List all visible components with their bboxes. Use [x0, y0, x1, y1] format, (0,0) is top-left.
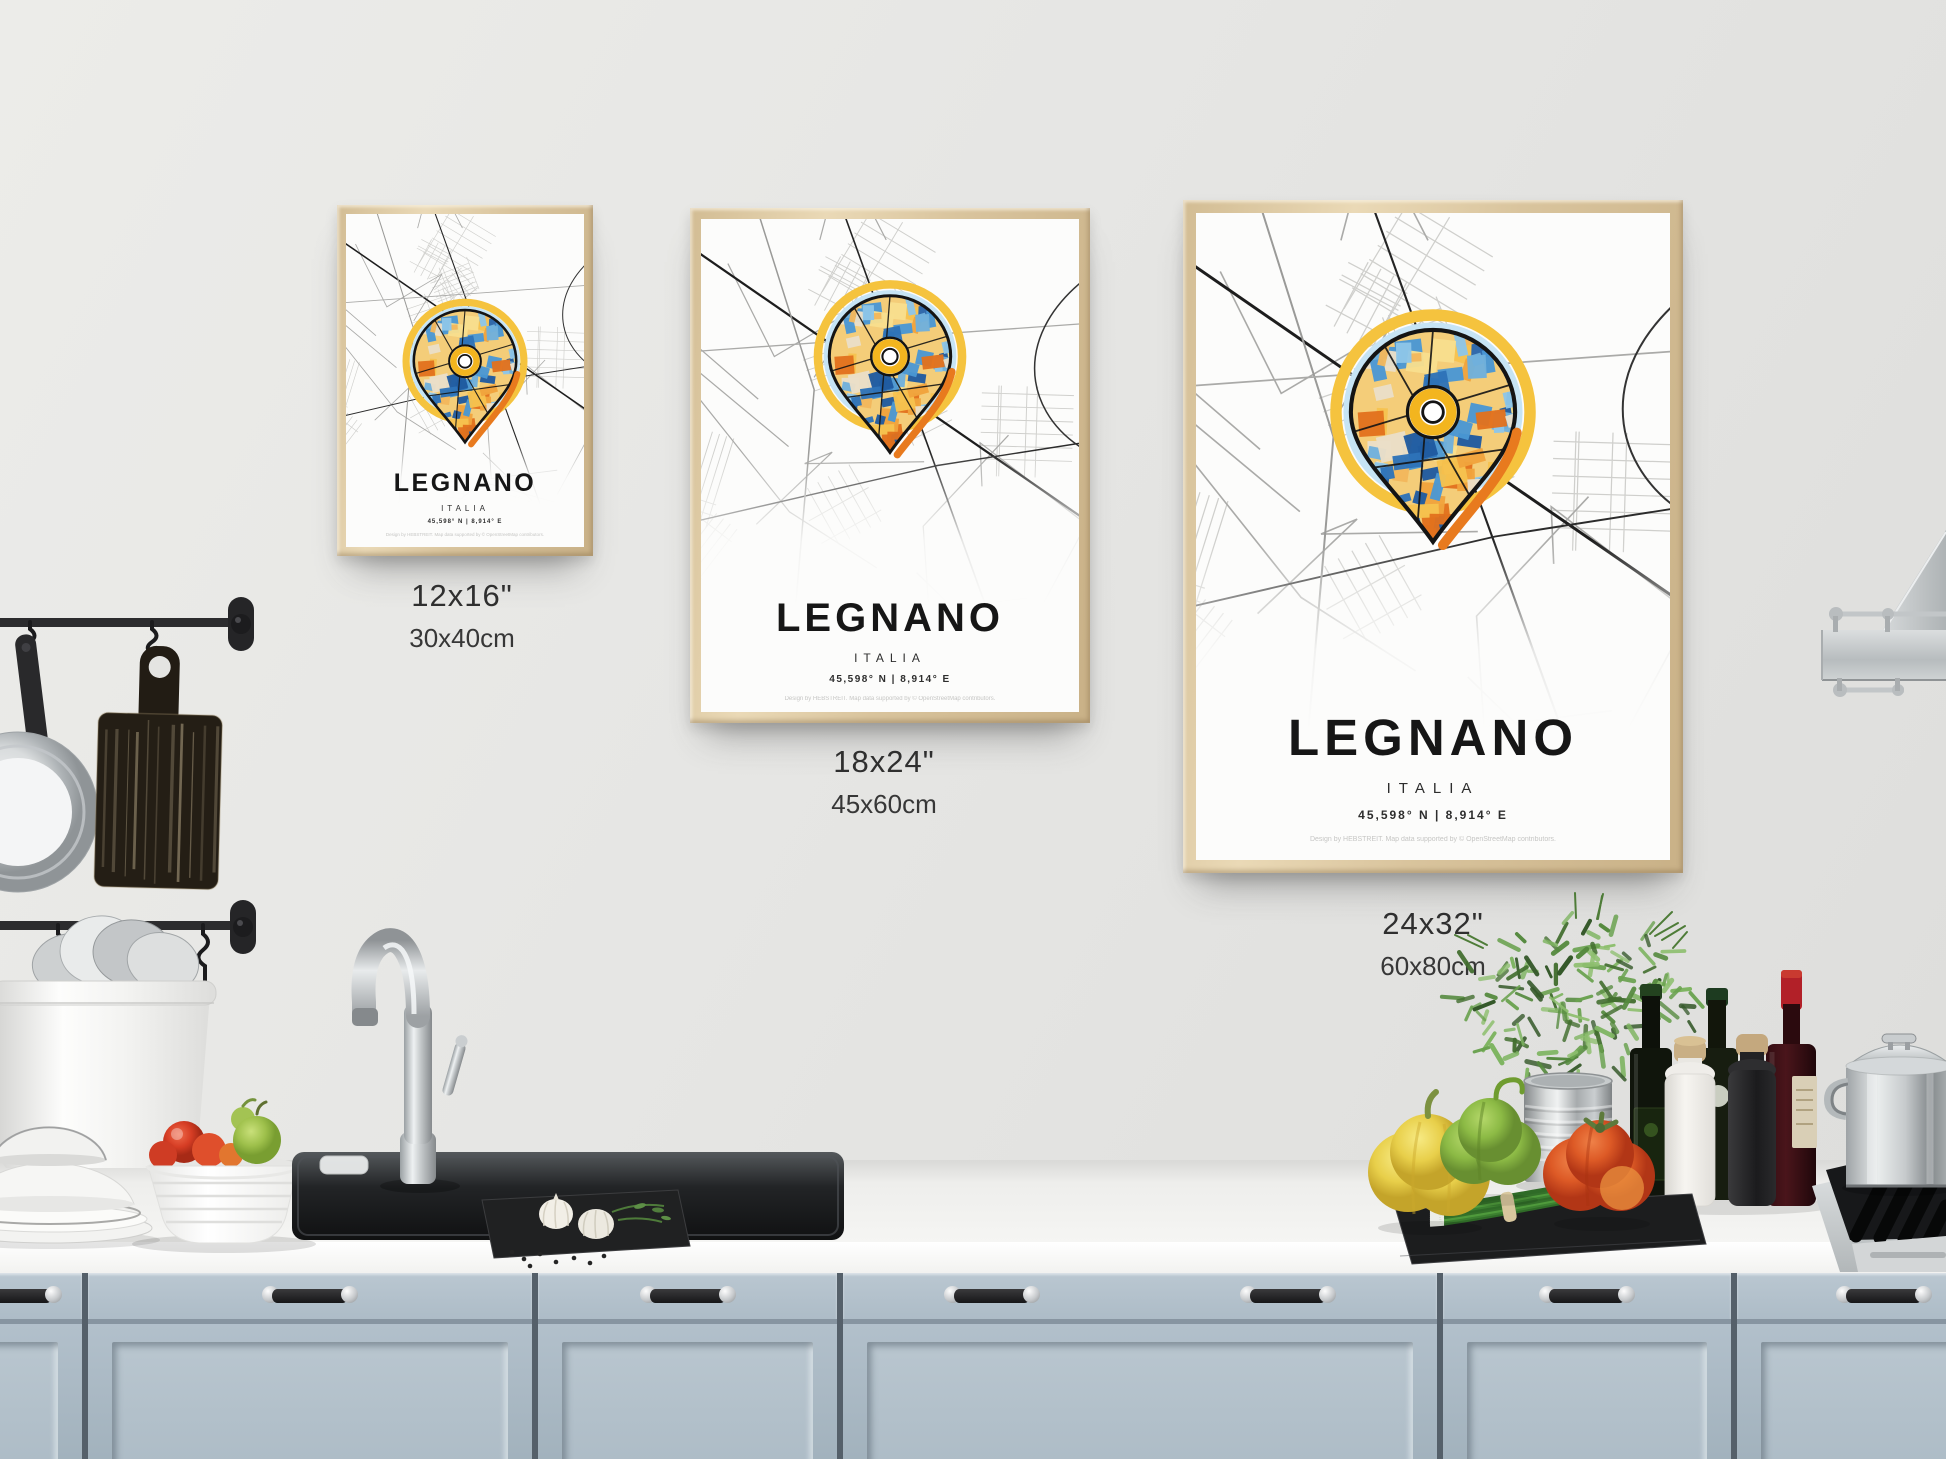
- countertop-front-edge: [0, 1242, 1946, 1275]
- cabinet-drawer: [538, 1273, 837, 1324]
- cabinet-unit: [0, 1273, 82, 1459]
- poster-print-medium: LEGNANO ITALIA 45,598° N | 8,914° E Desi…: [701, 219, 1079, 712]
- handle-rosette: [719, 1286, 736, 1303]
- size-label-24x32: 24x32" 60x80cm: [1380, 906, 1486, 982]
- size-inches: 12x16": [409, 578, 515, 614]
- size-cm: 60x80cm: [1380, 951, 1486, 982]
- cabinet-door: [843, 1324, 1437, 1459]
- poster-frame-small: LEGNANO ITALIA 45,598° N | 8,914° E Desi…: [337, 205, 593, 556]
- poster-coordinates: 45,598° N | 8,914° E: [701, 674, 1079, 685]
- cabinet-door-panel: [1467, 1342, 1707, 1459]
- poster-print-small: LEGNANO ITALIA 45,598° N | 8,914° E Desi…: [346, 214, 584, 547]
- handle-rosette: [1915, 1286, 1932, 1303]
- poster-country: ITALIA: [346, 504, 584, 513]
- handle-rosette: [1023, 1286, 1040, 1303]
- cabinet-handle: [1539, 1283, 1635, 1309]
- poster-frame-large: LEGNANO ITALIA 45,598° N | 8,914° E Desi…: [1183, 200, 1683, 873]
- cabinet-door-panel: [0, 1342, 58, 1459]
- handle-rosette: [341, 1286, 358, 1303]
- cabinet-door: [0, 1324, 82, 1459]
- cabinet-handle: [1240, 1283, 1336, 1309]
- cabinet-handle: [1836, 1283, 1932, 1309]
- cabinet-drawer: [88, 1273, 532, 1324]
- handle-rosette: [1319, 1286, 1336, 1303]
- poster-coordinates: 45,598° N | 8,914° E: [346, 519, 584, 525]
- size-label-12x16: 12x16" 30x40cm: [409, 578, 515, 654]
- size-inches: 24x32": [1380, 906, 1486, 942]
- cabinet-door: [1443, 1324, 1731, 1459]
- size-cm: 45x60cm: [831, 789, 937, 820]
- cabinet-door-panel: [867, 1342, 1413, 1459]
- handle-bar: [954, 1289, 1030, 1303]
- cabinet-handle: [944, 1283, 1040, 1309]
- poster-city-title: LEGNANO: [346, 469, 584, 498]
- poster-country: ITALIA: [1196, 780, 1670, 797]
- poster-credit: Design by HEBSTREIT. Map data supported …: [360, 532, 569, 537]
- handle-bar: [650, 1289, 726, 1303]
- cabinet-unit: [88, 1273, 532, 1459]
- poster-credit: Design by HEBSTREIT. Map data supported …: [1224, 836, 1641, 843]
- handle-bar: [1846, 1289, 1922, 1303]
- cabinet-door-panel: [562, 1342, 813, 1459]
- cabinet-door: [538, 1324, 837, 1459]
- poster-city-title: LEGNANO: [701, 596, 1079, 641]
- handle-rosette: [1618, 1286, 1635, 1303]
- cabinet-unit: [538, 1273, 837, 1459]
- cabinet-drawer: [1737, 1273, 1946, 1324]
- poster-text: LEGNANO ITALIA 45,598° N | 8,914° E Desi…: [346, 469, 584, 537]
- handle-bar: [1549, 1289, 1625, 1303]
- size-cm: 30x40cm: [409, 623, 515, 654]
- kitchen-cabinets: [0, 1273, 1946, 1459]
- handle-rosette: [45, 1286, 62, 1303]
- cabinet-door-panel: [112, 1342, 508, 1459]
- cabinet-handle: [0, 1283, 62, 1309]
- cabinet-unit: [1443, 1273, 1731, 1459]
- cabinet-handle: [262, 1283, 358, 1309]
- poster-text: LEGNANO ITALIA 45,598° N | 8,914° E Desi…: [1196, 708, 1670, 843]
- handle-bar: [272, 1289, 348, 1303]
- cabinet-drawer: [0, 1273, 82, 1324]
- cabinet-drawer: [843, 1273, 1437, 1324]
- poster-frame-medium: LEGNANO ITALIA 45,598° N | 8,914° E Desi…: [690, 208, 1090, 723]
- cabinet-unit: [1737, 1273, 1946, 1459]
- poster-print-large: LEGNANO ITALIA 45,598° N | 8,914° E Desi…: [1196, 213, 1670, 860]
- cabinet-door-panel: [1761, 1342, 1946, 1459]
- handle-bar: [1250, 1289, 1326, 1303]
- poster-text: LEGNANO ITALIA 45,598° N | 8,914° E Desi…: [701, 596, 1079, 702]
- size-inches: 18x24": [831, 744, 937, 780]
- poster-city-title: LEGNANO: [1196, 708, 1670, 767]
- cabinet-drawer: [1443, 1273, 1731, 1324]
- poster-coordinates: 45,598° N | 8,914° E: [1196, 808, 1670, 822]
- cabinet-unit: [843, 1273, 1437, 1459]
- kitchen-mockup-scene: LEGNANO ITALIA 45,598° N | 8,914° E Desi…: [0, 0, 1946, 1459]
- cabinet-door: [1737, 1324, 1946, 1459]
- size-label-18x24: 18x24" 45x60cm: [831, 744, 937, 820]
- cabinet-handle: [640, 1283, 736, 1309]
- poster-country: ITALIA: [701, 651, 1079, 665]
- countertop-surface: [0, 1160, 1946, 1242]
- cabinet-door: [88, 1324, 532, 1459]
- poster-credit: Design by HEBSTREIT. Map data supported …: [724, 696, 1057, 702]
